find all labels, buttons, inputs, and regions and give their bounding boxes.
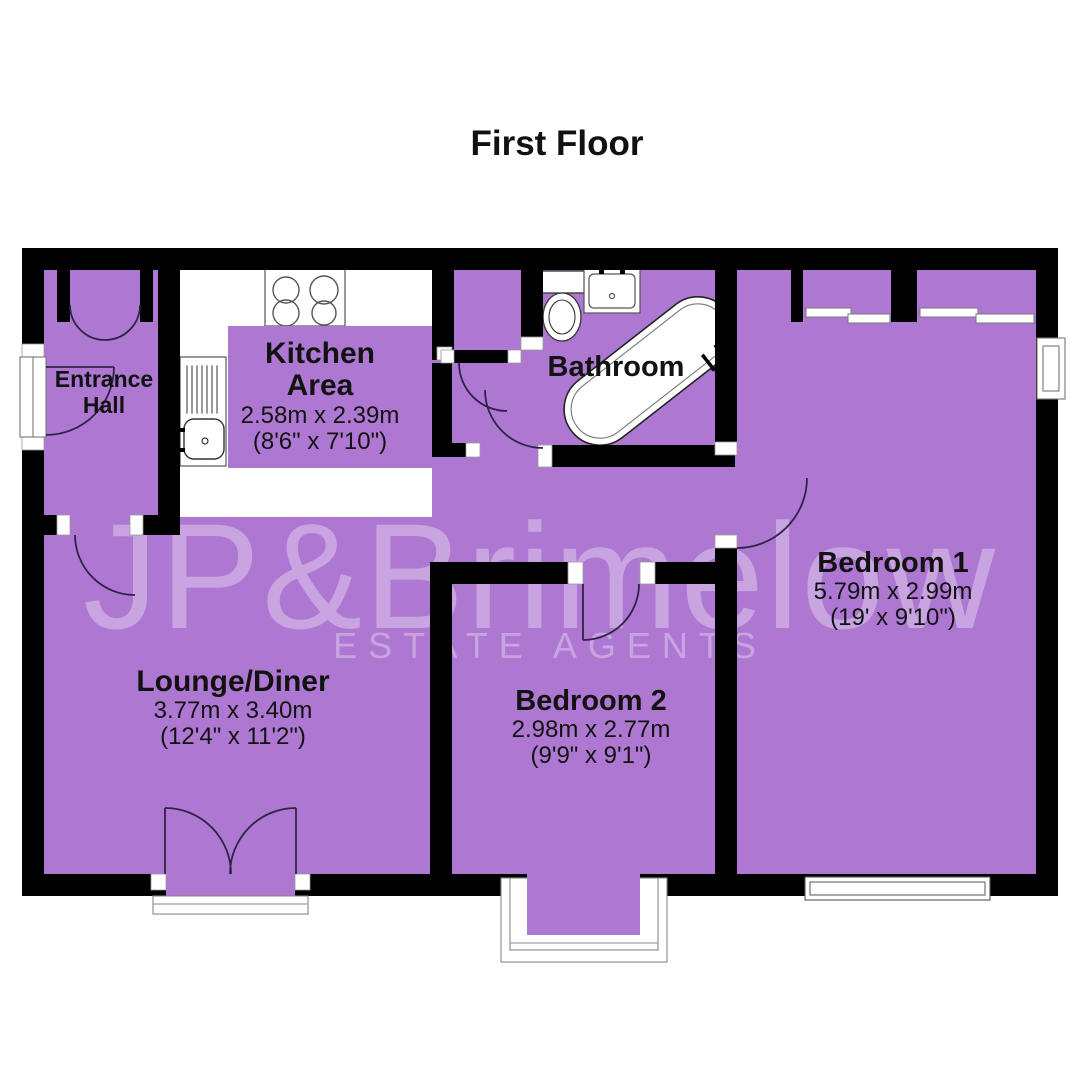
bedroom1-bottom-window xyxy=(805,877,990,900)
room-name: Hall xyxy=(55,392,153,418)
watermark-tagline: ESTATE AGENTS xyxy=(333,625,767,666)
floorplan-page: First Floor xyxy=(0,0,1080,1080)
room-name: Entrance xyxy=(55,366,153,392)
room-dimensions-metric: 2.98m x 2.77m xyxy=(512,717,671,743)
room-name: Area xyxy=(241,370,400,402)
floorplan-canvas: JP&Brimelow ESTATE AGENTS xyxy=(0,0,1080,1080)
room-name: Lounge/Diner xyxy=(136,666,329,698)
label-bathroom: Bathroom xyxy=(548,352,685,383)
room-dimensions-metric: 3.77m x 3.40m xyxy=(136,698,329,724)
room-dimensions-imperial: (8'6" x 7'10") xyxy=(241,429,400,455)
room-name: Bedroom 1 xyxy=(814,548,973,579)
room-name: Bathroom xyxy=(548,352,685,383)
hob-icon xyxy=(265,268,345,326)
room-dimensions-imperial: (19' x 9'10") xyxy=(814,605,973,631)
label-lounge-diner: Lounge/Diner 3.77m x 3.40m (12'4" x 11'2… xyxy=(136,666,329,750)
room-name: Bedroom 2 xyxy=(512,686,671,717)
label-bedroom-1: Bedroom 1 5.79m x 2.99m (19' x 9'10") xyxy=(814,548,973,631)
label-bedroom-2: Bedroom 2 2.98m x 2.77m (9'9" x 9'1") xyxy=(512,686,671,769)
bedroom1-side-window xyxy=(1037,338,1065,399)
room-dimensions-imperial: (12'4" x 11'2") xyxy=(136,724,329,750)
room-dimensions-metric: 5.79m x 2.99m xyxy=(814,579,973,605)
hall-window xyxy=(20,357,46,437)
lounge-french-doors xyxy=(151,874,310,914)
room-dimensions-imperial: (9'9" x 9'1") xyxy=(512,743,671,769)
label-entrance-hall: Entrance Hall xyxy=(55,366,153,419)
room-dimensions-metric: 2.58m x 2.39m xyxy=(241,403,400,429)
label-kitchen: Kitchen Area 2.58m x 2.39m (8'6" x 7'10"… xyxy=(241,338,400,455)
room-name: Kitchen xyxy=(241,338,400,370)
bedroom2-bay-window xyxy=(501,874,667,962)
